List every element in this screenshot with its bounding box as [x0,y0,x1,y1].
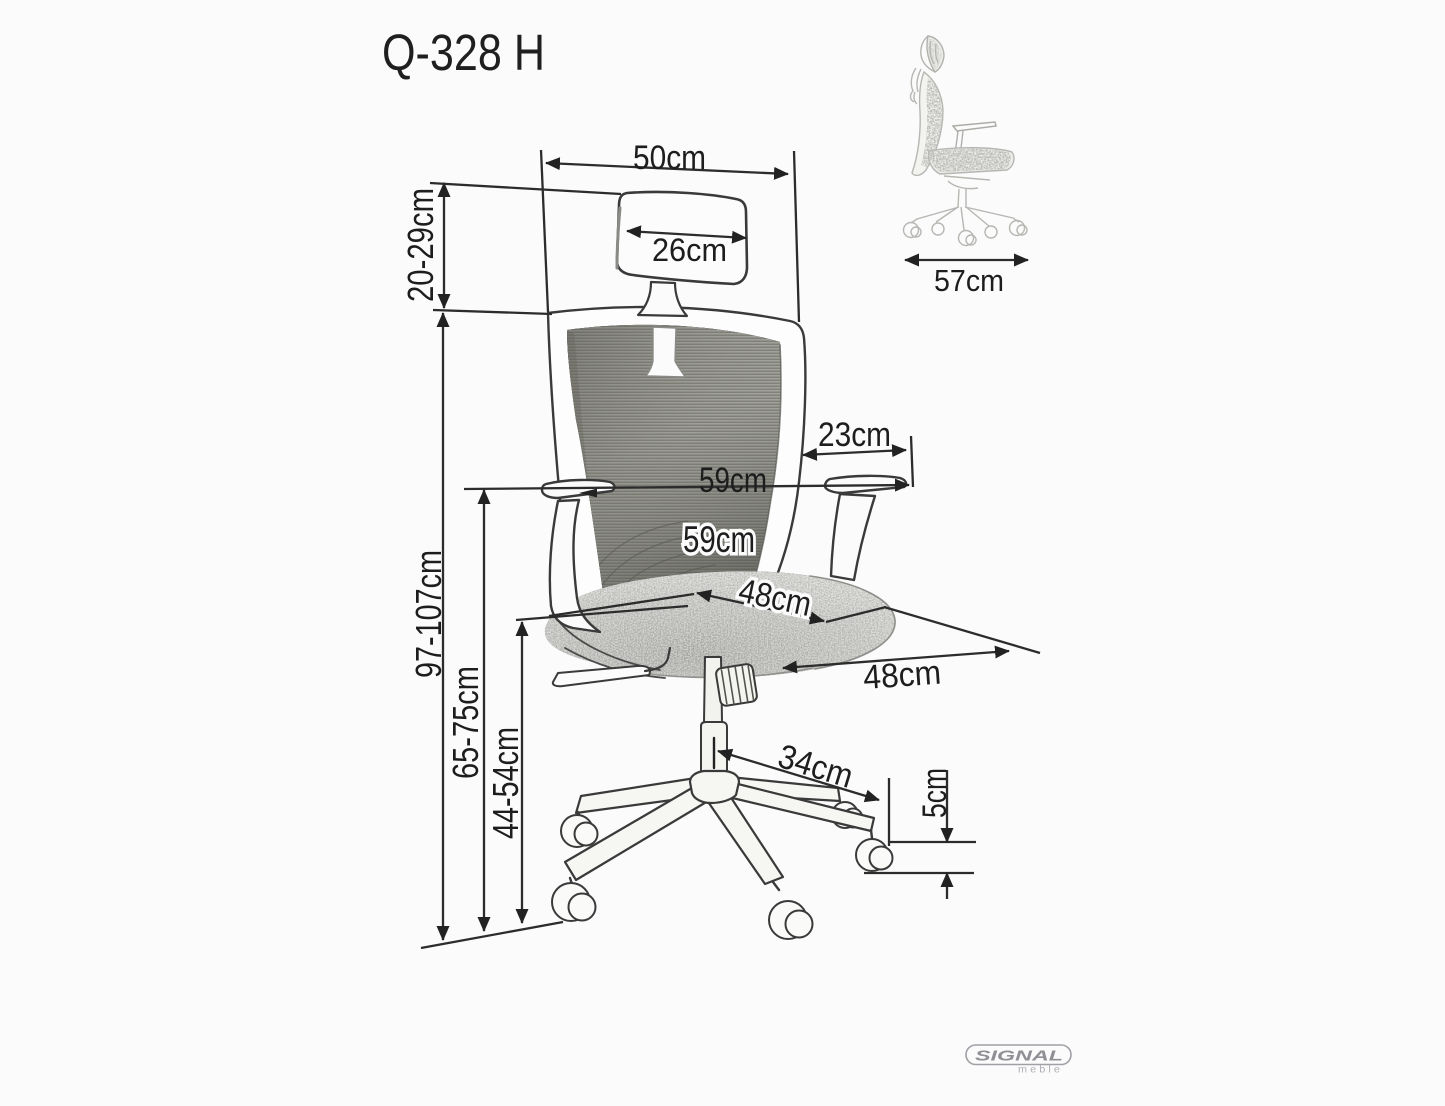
svg-text:20-29cm: 20-29cm [400,188,441,302]
svg-text:48cm: 48cm [862,654,942,697]
svg-text:97-107cm: 97-107cm [408,550,449,678]
svg-text:26cm: 26cm [652,232,727,268]
svg-text:Q-328 H: Q-328 H [382,24,545,81]
svg-text:57cm: 57cm [934,263,1004,298]
svg-text:23cm: 23cm [818,416,891,454]
svg-text:65-75cm: 65-75cm [445,666,486,779]
svg-text:44-54cm: 44-54cm [485,727,526,839]
svg-text:59cm: 59cm [699,461,767,500]
svg-text:59cm: 59cm [683,519,755,560]
svg-text:50cm: 50cm [633,139,706,177]
svg-text:meble: meble [1018,1064,1063,1076]
svg-text:5cm: 5cm [916,768,954,818]
svg-text:SIGNAL: SIGNAL [975,1048,1063,1065]
